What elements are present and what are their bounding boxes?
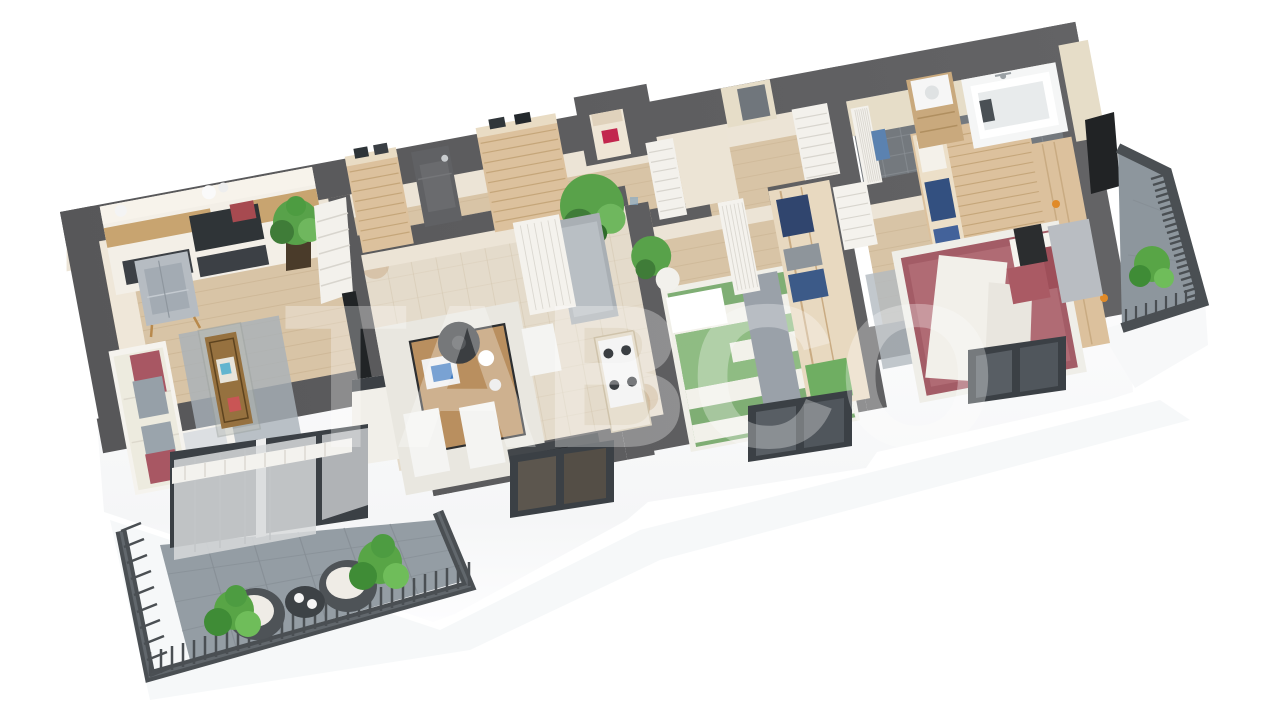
svg-text:TABCO: TABCO — [283, 262, 997, 491]
